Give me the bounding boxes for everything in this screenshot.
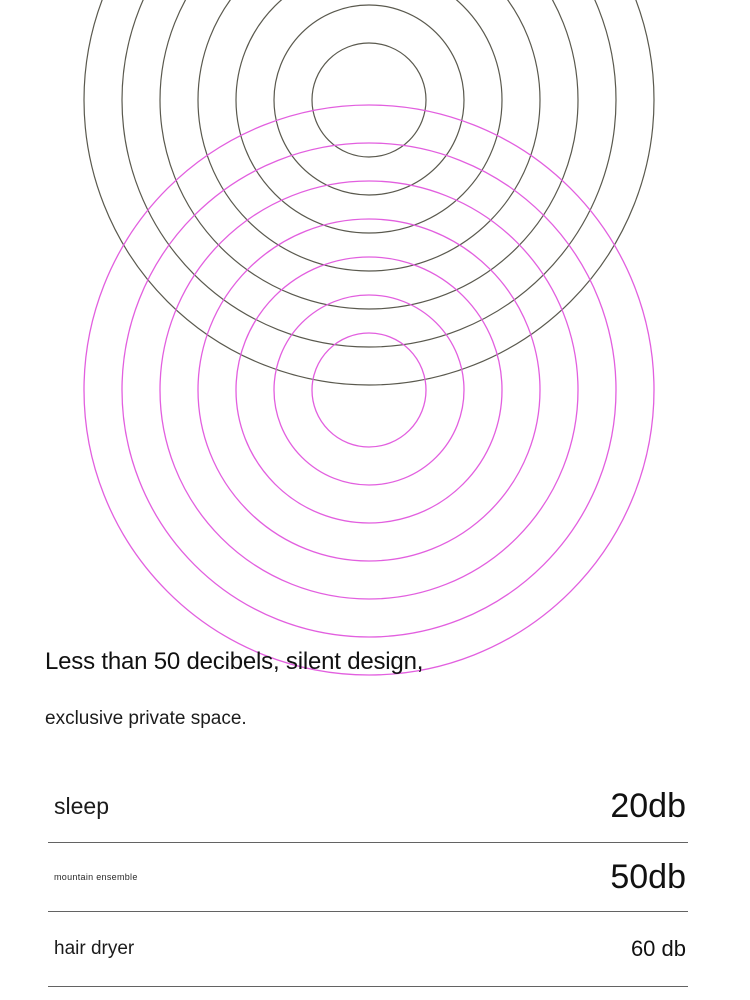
- row-value-hair-dryer: 60 db: [631, 936, 688, 962]
- table-row-mountain-ensemble: mountain ensemble 50db: [48, 843, 688, 912]
- noise-level-table: sleep 20db mountain ensemble 50db hair d…: [48, 770, 688, 987]
- row-label-sleep: sleep: [48, 793, 109, 820]
- headline-line1: Less than 50 decibels, silent design,: [45, 648, 645, 677]
- table-row-sleep: sleep 20db: [48, 770, 688, 843]
- section-headline: Less than 50 decibels, silent design, ex…: [45, 648, 645, 731]
- row-label-mountain-ensemble: mountain ensemble: [48, 872, 138, 882]
- row-label-hair-dryer: hair dryer: [48, 938, 134, 960]
- row-value-sleep: 20db: [610, 787, 688, 826]
- row-value-mountain-ensemble: 50db: [610, 858, 688, 897]
- headline-line2: exclusive private space.: [45, 708, 645, 731]
- silent-design-section: Less than 50 decibels, silent design, ex…: [0, 0, 750, 1000]
- table-row-hair-dryer: hair dryer 60 db: [48, 912, 688, 987]
